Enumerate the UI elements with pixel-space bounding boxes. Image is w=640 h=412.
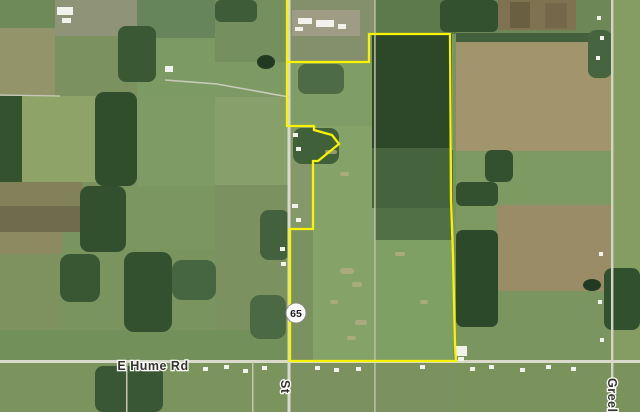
route-65-shield-icon: 65 — [286, 303, 306, 323]
road-label-e-hume-rd: E Hume Rd — [117, 359, 188, 373]
satellite-map: 65 E Hume Rd Greely St — [0, 0, 640, 412]
road-label-greely: Greely — [605, 378, 619, 412]
road-label-st: St — [278, 380, 292, 394]
route-shield-number: 65 — [290, 308, 302, 320]
